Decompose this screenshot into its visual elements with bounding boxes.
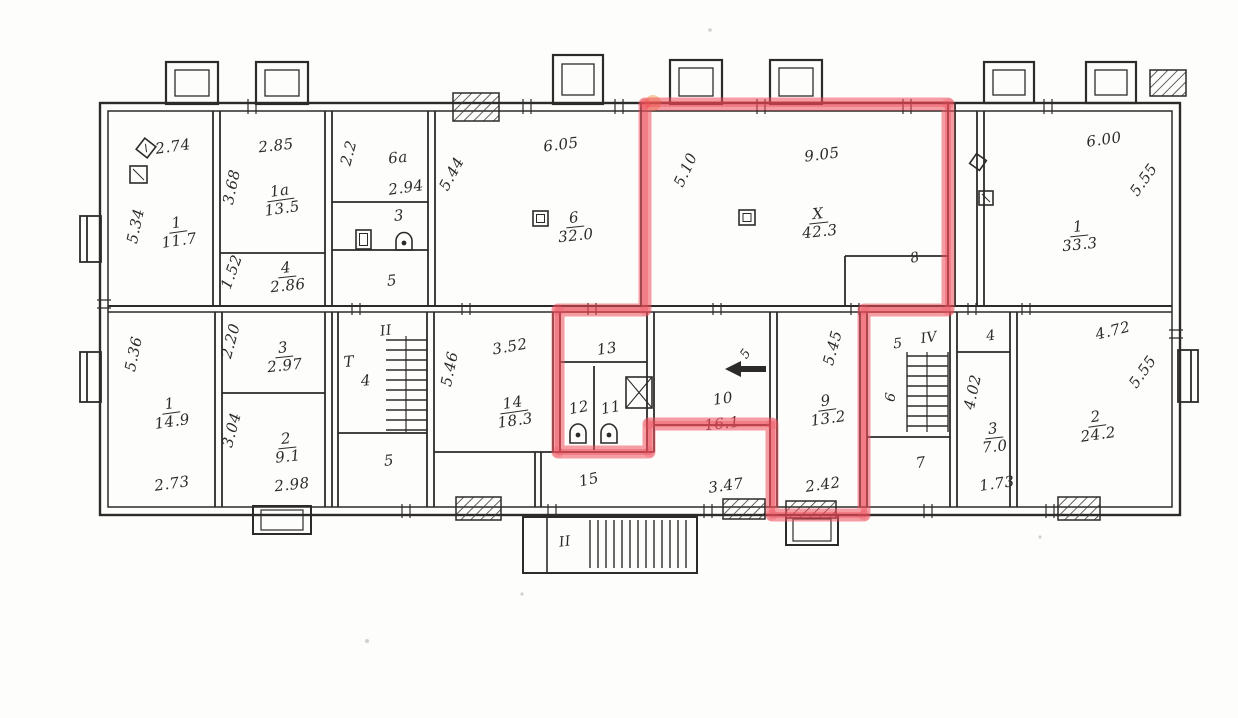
label-room2-lower: 29.1: [273, 430, 302, 465]
label-room12: 12: [568, 399, 590, 417]
label-dim-room14-top: 3.52: [491, 337, 528, 358]
label-room9: 913.2: [807, 391, 847, 429]
label-dim-room6a: 2.94: [387, 178, 424, 198]
label-dim-room2b-left: 3.04: [220, 411, 244, 449]
label-dim-door-width: 5: [738, 347, 754, 362]
label-dim-room1-top: 2.74: [154, 137, 191, 157]
label-dim-room1b-left: 5.36: [123, 335, 145, 373]
label-dim-room1b-bottom: 2.73: [153, 474, 190, 494]
label-dim-room1a-top: 2.85: [258, 137, 295, 156]
label-dim-room1a-left: 3.68: [221, 168, 243, 206]
labels-layer: 2.745.34111.72.853.681а13.51.5242.862.26…: [0, 0, 1238, 718]
label-room5-lower: 5: [383, 453, 394, 469]
label-room14: 1418.3: [494, 393, 534, 431]
label-room13: 13: [596, 340, 618, 358]
label-dim-room3r-bottom: 1.73: [978, 474, 1015, 494]
label-dim-room2r-top: 4.72: [1094, 319, 1132, 342]
label-room2-right: 224.2: [1077, 407, 1117, 445]
label-stairwell-4: IV: [920, 330, 938, 346]
label-stair-porch: II: [558, 534, 572, 550]
label-room3-lower: 32.97: [265, 339, 304, 376]
label-room6-right: 6: [883, 391, 898, 403]
label-dim-room6-top: 6.05: [543, 135, 580, 154]
label-dim-room2r-right: 5.55: [1127, 353, 1160, 391]
label-dim-roomx-left: 5.10: [672, 151, 701, 189]
label-dim-room9-bottom: 2.42: [804, 475, 841, 495]
label-room8: 8: [909, 250, 921, 266]
label-room1-lower: 114.9: [151, 394, 191, 432]
label-dim-roomx-top: 9.05: [804, 145, 841, 164]
label-room1-right: 133.3: [1060, 218, 1099, 255]
label-room5-upper: 5: [386, 273, 397, 289]
label-roomx: Х42.3: [800, 205, 839, 242]
label-stair-left-number: 4: [360, 373, 371, 389]
label-dim-corridor10: 16.1: [704, 415, 741, 434]
label-room6a: 6а: [388, 150, 409, 167]
floor-plan-scan: 2.745.34111.72.853.681а13.51.5242.862.26…: [0, 0, 1238, 718]
label-dim-room14-left: 5.46: [439, 350, 461, 388]
label-dim-room3b-left: 2.20: [219, 322, 243, 360]
label-room15: 15: [578, 471, 601, 490]
label-room10: 10: [712, 390, 734, 408]
label-room7: 7: [915, 455, 927, 471]
label-dim-room9-left: 5.45: [821, 329, 845, 367]
label-room5-right: 5: [893, 337, 904, 352]
label-room6: 632.0: [556, 209, 595, 246]
label-dim-room1-left: 5.34: [125, 207, 147, 245]
label-dim-room1r-right: 5.55: [1128, 161, 1161, 199]
label-dim-room2b-bottom: 2.98: [274, 476, 311, 495]
label-room4-right: 4: [985, 328, 996, 343]
label-dim-room15-bottom: 3.47: [707, 476, 744, 496]
label-dim-room1r-top: 6.00: [1085, 130, 1122, 150]
label-stair-left-letter: Т: [343, 354, 355, 370]
label-dim-room3r-left: 4.02: [962, 373, 984, 411]
label-stairwell-2-upper: II: [379, 323, 393, 339]
label-room4: 42.86: [268, 259, 307, 296]
label-room1-upper: 111.7: [158, 213, 198, 251]
label-room3-upper: 3: [393, 208, 404, 224]
label-dim-room6-left: 5.44: [437, 155, 467, 193]
label-dim-room6a-left: 2.2: [338, 139, 359, 167]
label-room1a: 1а13.5: [261, 181, 301, 219]
label-room3-right: 37.0: [980, 420, 1009, 455]
label-room11: 11: [600, 399, 622, 417]
label-dim-room4-left: 1.52: [219, 253, 245, 291]
